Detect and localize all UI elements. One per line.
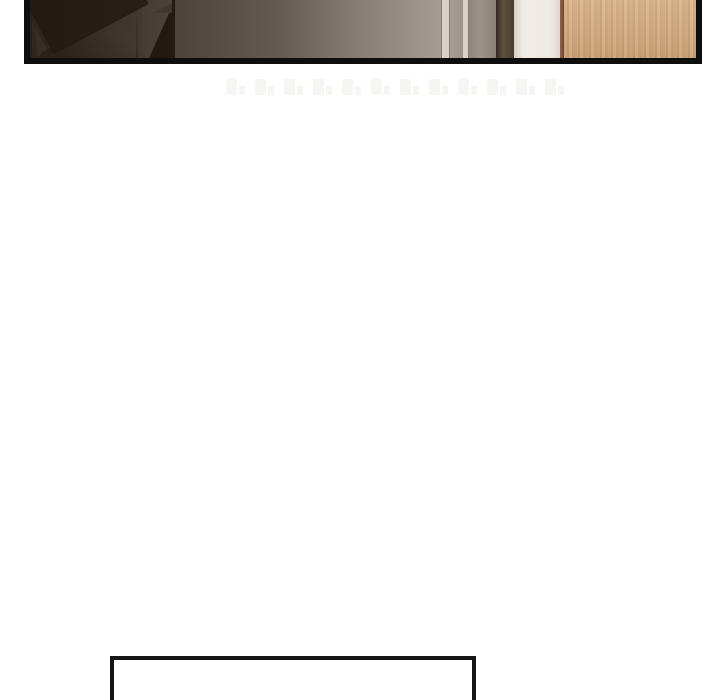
watermark-glyph-large-block: [284, 79, 295, 95]
watermark-glyph-large-block: [458, 79, 469, 95]
watermark-glyph: [516, 79, 535, 95]
watermark-glyph: [255, 79, 274, 95]
gray-door-panel: [469, 0, 496, 58]
watermark-glyph-large-block: [371, 79, 382, 95]
watermark-glyph: [284, 79, 303, 95]
watermark-glyph-small-block: [442, 86, 448, 95]
watermark-glyph-large-block: [487, 79, 498, 95]
webtoon-page: [0, 0, 720, 700]
watermark-glyph-small-block: [239, 86, 245, 95]
comic-panel: [24, 0, 702, 64]
dark-wardrobe-panel: [496, 0, 514, 58]
floor-shadow: [30, 0, 480, 58]
watermark-glyph-small-block: [326, 86, 332, 95]
watermark-glyph: [342, 79, 361, 95]
watermark-glyph-small-block: [471, 86, 477, 95]
glass-door-pane: [450, 0, 463, 58]
watermark-glyph-large-block: [342, 79, 353, 95]
watermark-glyph-small-block: [500, 86, 506, 95]
watermark-row: [226, 79, 564, 95]
watermark-glyph: [226, 79, 245, 95]
speech-bubble-box: [110, 656, 476, 700]
watermark-glyph-large-block: [545, 79, 556, 95]
panel-scene: [30, 0, 696, 58]
watermark-glyph-large-block: [313, 79, 324, 95]
watermark-glyph: [400, 79, 419, 95]
watermark-glyph: [545, 79, 564, 95]
watermark-glyph: [458, 79, 477, 95]
watermark-glyph: [429, 79, 448, 95]
watermark-glyph-large-block: [516, 79, 527, 95]
watermark-glyph-small-block: [384, 86, 390, 95]
watermark-glyph-large-block: [400, 79, 411, 95]
watermark-glyph-small-block: [268, 86, 274, 95]
watermark-glyph-small-block: [558, 86, 564, 95]
watermark-glyph-large-block: [429, 79, 440, 95]
watermark-glyph-small-block: [355, 86, 361, 95]
watermark-glyph-large-block: [226, 79, 237, 95]
watermark-glyph-large-block: [255, 79, 266, 95]
watermark-glyph-small-block: [413, 86, 419, 95]
watermark-glyph-small-block: [297, 86, 303, 95]
watermark-glyph: [487, 79, 506, 95]
watermark-glyph: [371, 79, 390, 95]
wood-cabinet: [564, 0, 696, 58]
watermark-glyph-small-block: [529, 86, 535, 95]
watermark-glyph: [313, 79, 332, 95]
white-wall-strip: [514, 0, 560, 58]
glass-door-frame-left: [441, 0, 450, 58]
